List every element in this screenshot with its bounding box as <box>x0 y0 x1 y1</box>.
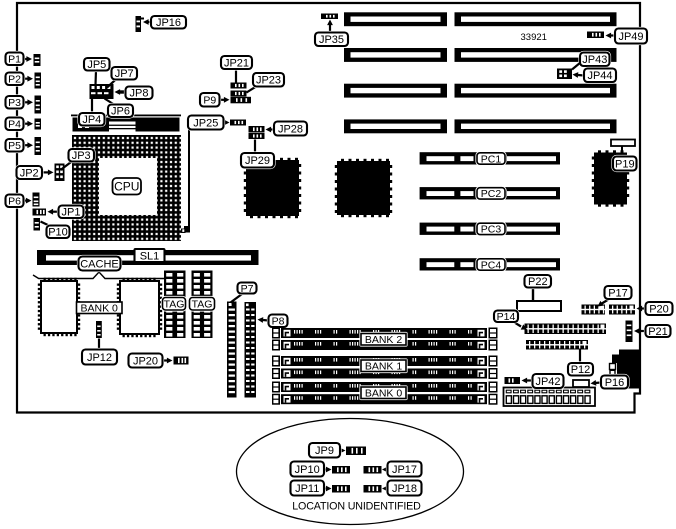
svg-text:P16: P16 <box>605 377 625 389</box>
svg-text:JP9: JP9 <box>315 445 334 457</box>
svg-text:P12: P12 <box>571 364 591 376</box>
svg-text:P6: P6 <box>8 196 21 208</box>
svg-text:JP44: JP44 <box>587 70 612 82</box>
svg-text:P10: P10 <box>48 227 68 239</box>
svg-text:JP6: JP6 <box>111 106 130 118</box>
svg-text:JP29: JP29 <box>245 155 270 167</box>
svg-text:JP2: JP2 <box>20 168 39 180</box>
svg-text:BANK 0: BANK 0 <box>81 303 119 315</box>
svg-text:P8: P8 <box>272 316 285 328</box>
svg-text:LOCATION UNIDENTIFIED: LOCATION UNIDENTIFIED <box>292 501 421 513</box>
svg-text:CACHE: CACHE <box>80 259 119 271</box>
svg-text:JP49: JP49 <box>618 31 643 43</box>
svg-text:JP11: JP11 <box>295 483 319 495</box>
svg-text:P1: P1 <box>8 54 21 66</box>
svg-text:P19: P19 <box>615 159 635 171</box>
svg-text:JP43: JP43 <box>582 54 607 66</box>
svg-text:JP42: JP42 <box>535 376 560 388</box>
svg-text:JP23: JP23 <box>256 75 281 87</box>
svg-text:P9: P9 <box>203 95 216 107</box>
svg-text:JP8: JP8 <box>130 88 149 100</box>
svg-text:JP16: JP16 <box>156 17 181 29</box>
svg-text:JP17: JP17 <box>392 464 417 476</box>
svg-text:P17: P17 <box>608 288 628 300</box>
svg-text:P22: P22 <box>528 276 548 288</box>
svg-text:JP10: JP10 <box>295 464 320 476</box>
svg-text:P2: P2 <box>8 74 21 86</box>
svg-text:SL1: SL1 <box>140 251 160 263</box>
svg-text:JP21: JP21 <box>224 58 249 70</box>
svg-text:PC2: PC2 <box>481 188 502 200</box>
svg-text:P14: P14 <box>497 311 516 323</box>
svg-text:JP1: JP1 <box>62 207 81 219</box>
svg-text:JP3: JP3 <box>72 150 91 162</box>
svg-text:JP28: JP28 <box>278 124 303 136</box>
svg-text:JP18: JP18 <box>392 483 417 495</box>
svg-text:PC3: PC3 <box>481 224 502 236</box>
svg-text:BANK 2: BANK 2 <box>365 334 403 346</box>
svg-text:P5: P5 <box>8 140 21 152</box>
svg-text:JP35: JP35 <box>319 34 344 46</box>
svg-text:PC4: PC4 <box>481 259 502 271</box>
svg-text:BANK 1: BANK 1 <box>365 361 403 373</box>
svg-text:JP12: JP12 <box>87 352 112 364</box>
svg-text:P4: P4 <box>8 119 21 131</box>
svg-text:JP25: JP25 <box>193 118 218 130</box>
svg-text:P3: P3 <box>8 97 21 109</box>
svg-text:JP7: JP7 <box>115 68 134 80</box>
svg-text:P21: P21 <box>648 326 668 338</box>
svg-text:TAG: TAG <box>192 299 213 311</box>
svg-text:JP5: JP5 <box>87 59 106 71</box>
svg-text:TAG: TAG <box>164 299 185 311</box>
svg-text:BANK 0: BANK 0 <box>365 388 403 400</box>
svg-text:P7: P7 <box>241 283 254 295</box>
svg-text:JP4: JP4 <box>82 114 101 126</box>
svg-text:JP20: JP20 <box>133 356 158 368</box>
svg-text:CPU: CPU <box>114 180 139 194</box>
svg-text:P20: P20 <box>649 304 669 316</box>
svg-text:PC1: PC1 <box>481 153 502 165</box>
svg-text:33921: 33921 <box>521 32 547 43</box>
